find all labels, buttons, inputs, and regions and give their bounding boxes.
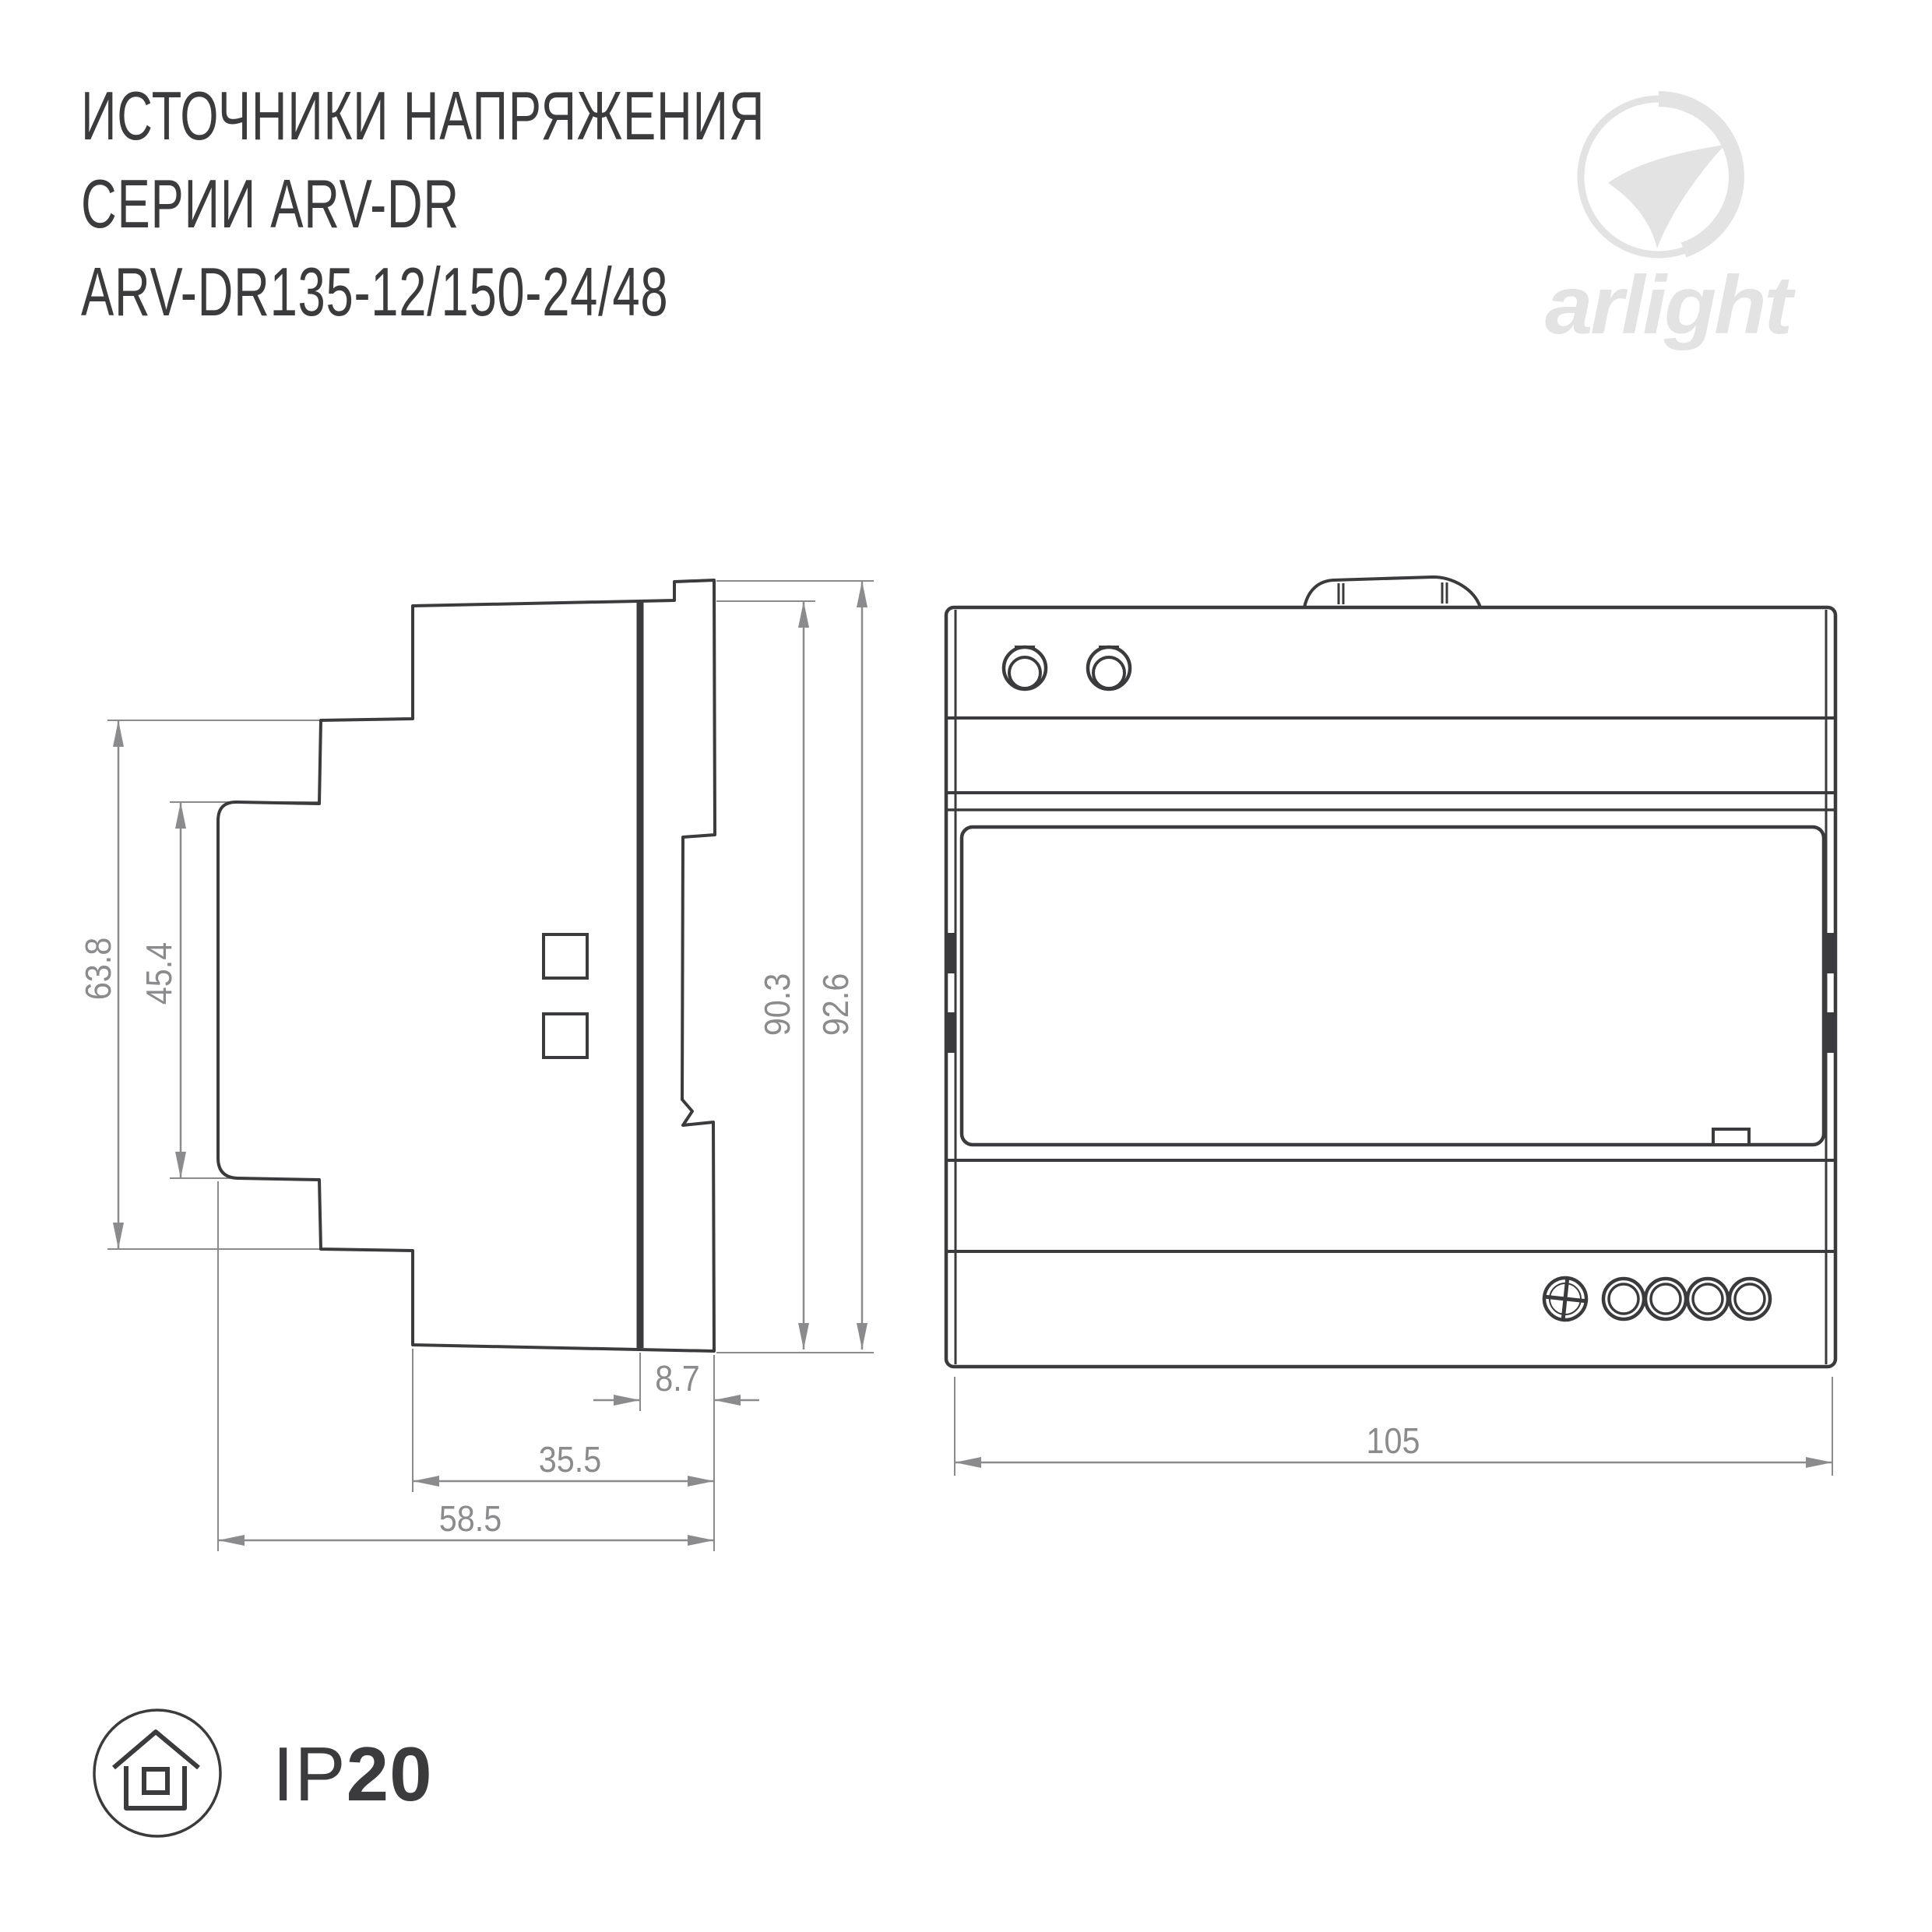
dim-label-inner-height: 45.4: [138, 942, 180, 1005]
arlight-logo-text: arlight: [1545, 259, 1790, 353]
catalog-drawing-page: ИСТОЧНИКИ НАПРЯЖЕНИЯ СЕРИИ ARV-DR ARV-DR…: [0, 0, 1932, 1932]
front-view-label-tab: [1713, 1129, 1749, 1145]
indoor-use-icon: [94, 1710, 220, 1836]
ip-rating-value: 20: [347, 1731, 433, 1817]
dim-label-body-depth: 35.5: [539, 1438, 602, 1480]
dim-label-total-depth: 58.5: [439, 1497, 502, 1540]
potentiometer-2: [1088, 647, 1130, 689]
dim-label-total-height: 92.6: [815, 973, 857, 1036]
ip-rating-prefix: IP: [273, 1731, 347, 1817]
dim-label-outer-height: 63.8: [77, 938, 119, 1001]
ip-rating: IP20: [273, 1730, 433, 1818]
side-vent-square-2: [544, 1014, 587, 1057]
side-vent-square-1: [544, 934, 587, 978]
front-view-label-area: [962, 827, 1824, 1145]
side-view: [107, 580, 874, 1551]
arlight-logo-icon: [1581, 99, 1737, 255]
potentiometer-1: [1004, 647, 1046, 689]
dim-label-rail-offset: 8.7: [655, 1357, 700, 1399]
dim-label-front-width: 105: [1366, 1420, 1420, 1462]
front-view: [946, 577, 1835, 1476]
front-view-knob: [1304, 577, 1480, 607]
dim-label-body-height: 90.3: [756, 973, 798, 1036]
